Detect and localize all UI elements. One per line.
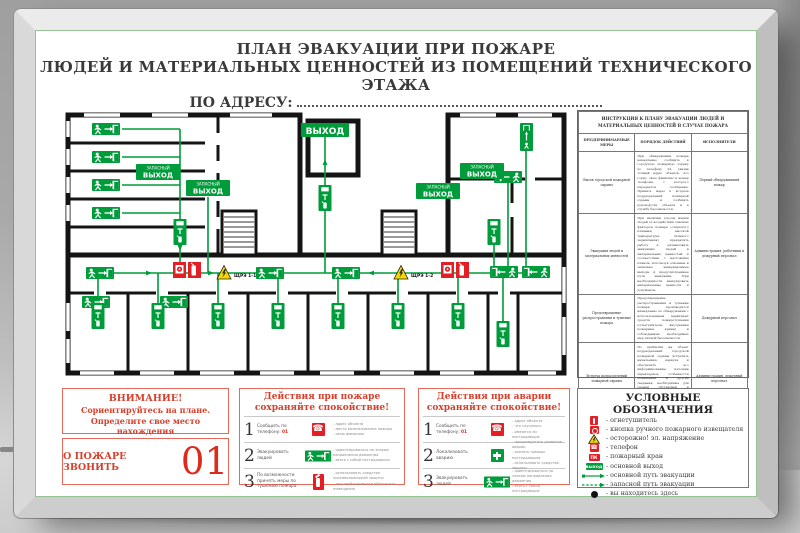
poster-title: ПЛАН ЭВАКУАЦИИ ПРИ ПОЖАРЕ ЛЮДЕЙ И МАТЕРИ… (36, 40, 756, 113)
step-label: Сообщить по телефону: 01 (436, 424, 482, 436)
fire-call-label: О ПОЖАРЕ ЗВОНИТЬ (63, 451, 174, 473)
step-bullets: - предотвратить развитие аварии - оказат… (512, 440, 565, 470)
fire-actions-header: Действия при пожаре сохраняйте спокойств… (244, 389, 400, 416)
step-number: 3 (244, 472, 257, 492)
step-label-text: Локализовать аварию (436, 450, 468, 461)
step-icon-cell (482, 449, 512, 462)
photo-backdrop: ПЛАН ЭВАКУАЦИИ ПРИ ПОЖАРЕ ЛЮДЕЙ И МАТЕРИ… (0, 0, 800, 533)
step-phone-number: 01 (461, 430, 467, 435)
phone-icon: ☎ (491, 423, 504, 436)
fire-actions-subtitle: сохраняйте спокойствие! (255, 403, 389, 413)
title-line-2: ЛЮДЕЙ И МАТЕРИАЛЬНЫХ ЦЕННОСТЕЙ ИЗ ПОМЕЩЕ… (36, 58, 756, 94)
fire-hydrant-icon: ПК (589, 454, 600, 461)
col-header-executors: ИСПОЛНИТЕЛИ (691, 134, 747, 152)
attention-line: Сориентируйтесь на плане. (63, 405, 228, 416)
bullet: - при необходимости обесточить помещение (333, 482, 400, 492)
step-phone-number: 01 (282, 430, 288, 435)
table-row: Вызов городской пожарной охраны При обна… (579, 152, 748, 214)
step-icon-cell (482, 476, 512, 488)
svg-text:ВЫХОД: ВЫХОД (143, 172, 173, 180)
step-number: 1 (244, 420, 257, 440)
bullet: - взять с собой пострадавших (333, 458, 400, 463)
legend-label: - огнетушитель (606, 417, 657, 425)
table-row: Эвакуация людей и материальных ценностей… (579, 214, 748, 294)
main-exit-label: ВЫХОД (301, 123, 349, 137)
legend-label: - осторожно! эл. напряжение (606, 435, 704, 443)
accident-actions-title: Действия при аварии (437, 392, 551, 402)
attention-line: Определите свое место нахождения (63, 416, 228, 437)
fire-call-box: О ПОЖАРЕ ЗВОНИТЬ 01 (62, 438, 229, 485)
accident-actions-header: Действия при аварии сохраняйте спокойств… (423, 389, 565, 416)
exit-sign-icon (305, 450, 331, 462)
executor-cell: Первый обнаруживший пожар (691, 152, 747, 214)
legend-box: УСЛОВНЫЕ ОБОЗНАЧЕНИЯ - огнетушитель - кн… (577, 388, 749, 488)
attention-title: ВНИМАНИЕ! (63, 393, 228, 405)
svg-text:ЩРЭ 1-2: ЩРЭ 1-2 (411, 273, 433, 279)
svg-text:ВЫХОД: ВЫХОД (306, 127, 345, 137)
legend-item: - осторожно! эл. напряжение (582, 434, 744, 443)
bullet: - использовать средства противопожарной … (333, 471, 400, 481)
svg-text:ЩРЭ 1-1: ЩРЭ 1-1 (234, 273, 256, 279)
main-route-icon (582, 472, 606, 480)
measure-cell: Эвакуация людей и материальных ценностей (579, 214, 635, 294)
fire-actions-box: Действия при пожаре сохраняйте спокойств… (239, 388, 405, 485)
emergency-exit-label: ЗАПАСНЫЙ ВЫХОД (136, 164, 180, 180)
step-icon-cell (303, 450, 333, 462)
step-label: Эвакуировать людей (257, 450, 303, 462)
step-icon-cell: ☎ (303, 423, 333, 436)
emergency-exit-label: ЗАПАСНЫЙ ВЫХОД (416, 183, 460, 199)
bullet: - свою фамилию (333, 432, 400, 437)
actions-cell: Предотвращение распространения и тушение… (635, 294, 691, 343)
action-step: 2 Локализовать аварию - предотвратить ра… (423, 442, 565, 468)
svg-text:ВЫХОД: ВЫХОД (467, 171, 497, 179)
legend-item: ПК - пожарный кран (582, 453, 744, 462)
executor-cell: Администрация, работники и дежурный перс… (691, 214, 747, 294)
step-bullets: - адрес объекта - место возникновения по… (333, 422, 400, 437)
alarm-button-icon (590, 426, 599, 434)
step-bullets: - ориентироваться по знакам направления … (333, 448, 400, 463)
emergency-exit-label: ЗАПАСНЫЙ ВЫХОД (186, 180, 230, 196)
legend-item: - запасной путь эвакуации (582, 480, 744, 489)
step-bullets: - адрес объекта - что случилось - имеютс… (512, 419, 565, 439)
step-label-text: Эвакуировать людей (436, 476, 468, 487)
measure-cell: Вызов городской пожарной охраны (579, 152, 635, 214)
electric-warning-icon (588, 434, 600, 444)
svg-text:ВЫХОД: ВЫХОД (423, 191, 453, 199)
step-icon-cell: ☎ (482, 423, 512, 436)
fire-actions-title: Действия при пожаре (264, 392, 380, 402)
svg-text:ВЫХОД: ВЫХОД (193, 188, 223, 196)
action-step: 1 Сообщить по телефону: 01 ☎ - адрес объ… (423, 416, 565, 442)
bullet: - взять с собой пострадавших (512, 484, 565, 494)
step-number: 3 (423, 472, 436, 492)
step-label-text: Эвакуировать людей (257, 450, 289, 461)
executor-cell: Дежурный персонал (691, 294, 747, 343)
attention-box: ВНИМАНИЕ! Сориентируйтесь на плане. Опре… (62, 388, 229, 434)
step-number: 2 (423, 446, 436, 466)
emergency-exit-label: ЗАПАСНЫЙ ВЫХОД (460, 163, 504, 179)
step-bullets: - ориентироваться по знакам направления … (512, 469, 565, 494)
bullet: - предотвратить развитие аварии (512, 440, 565, 450)
actions-cell: При обнаружении пожара немедленно сообщи… (635, 152, 691, 214)
stairs (222, 211, 416, 255)
bullet: - оказать помощь пострадавшим (512, 450, 565, 460)
svg-text:ЗАПАСНЫЙ: ЗАПАСНЫЙ (196, 182, 219, 187)
action-step: 1 Сообщить по телефону: 01 ☎ - адрес объ… (244, 416, 400, 442)
title-line-1: ПЛАН ЭВАКУАЦИИ ПРИ ПОЖАРЕ (36, 40, 756, 58)
svg-text:ЗАПАСНЫЙ: ЗАПАСНЫЙ (426, 185, 449, 190)
legend-label: - основной путь эвакуации (606, 472, 695, 480)
accident-actions-box: Действия при аварии сохраняйте спокойств… (418, 388, 570, 485)
legend-item: - огнетушитель (582, 416, 744, 425)
main-exit-icon: ВЫХОД (586, 463, 603, 470)
svg-text:ЗАПАСНЫЙ: ЗАПАСНЫЙ (146, 166, 169, 171)
exit-signs (82, 123, 550, 308)
legend-item: - основной путь эвакуации (582, 471, 744, 480)
fire-call-number: 01 (181, 443, 228, 480)
legend-item: ВЫХОД - основной выход (582, 462, 744, 471)
bullet: - ориентироваться по знакам направления … (512, 469, 565, 484)
you-are-here-icon (591, 491, 598, 498)
step-label-text: По возможности принять меры по тушению п… (257, 473, 297, 490)
extinguisher-icon (590, 416, 598, 425)
address-dotted-line (297, 94, 602, 107)
measure-cell: Предотвращение распространения и тушение… (579, 294, 635, 343)
action-step: 3 По возможности принять меры по тушению… (244, 468, 400, 494)
legend-label: - вы находитесь здесь (606, 490, 678, 498)
exit-sign-icon (484, 476, 510, 488)
instruction-table: ИНСТРУКЦИЯ К ПЛАНУ ЭВАКУАЦИИ ЛЮДЕЙ И МАТ… (577, 110, 749, 378)
svg-text:ЗАПАСНЫЙ: ЗАПАСНЫЙ (470, 165, 493, 170)
bullet: - имеются ли пострадавшие (512, 430, 565, 440)
action-step: 2 Эвакуировать людей - ориентироваться п… (244, 442, 400, 468)
aluminum-frame: ПЛАН ЭВАКУАЦИИ ПРИ ПОЖАРЕ ЛЮДЕЙ И МАТЕРИ… (14, 9, 778, 518)
legend-label: - запасной путь эвакуации (606, 481, 694, 489)
legend-item: ☎ - телефон (582, 444, 744, 453)
step-bullets: - использовать средства противопожарной … (333, 471, 400, 491)
action-step: 3 Эвакуировать людей - ориентироваться п… (423, 468, 565, 494)
step-label: По возможности принять меры по тушению п… (257, 473, 303, 490)
accident-actions-subtitle: сохраняйте спокойствие! (427, 403, 561, 413)
instruction-table-title: ИНСТРУКЦИЯ К ПЛАНУ ЭВАКУАЦИИ ЛЮДЕЙ И МАТ… (579, 112, 748, 134)
extinguisher-icon (313, 474, 324, 490)
col-header-actions: ПОРЯДОК ДЕЙСТВИЙ (635, 134, 691, 152)
actions-cell: При наличии угрозы жизни людей от воздей… (635, 214, 691, 294)
table-row: Предотвращение распространения и тушение… (579, 294, 748, 343)
legend-item: - вы находитесь здесь (582, 490, 744, 499)
legend-title: УСЛОВНЫЕ ОБОЗНАЧЕНИЯ (582, 392, 744, 416)
legend-item: - кнопка ручного пожарного извещателя (582, 425, 744, 434)
reserve-route-icon (582, 481, 606, 489)
phone-icon: ☎ (312, 423, 325, 436)
phone-icon: ☎ (590, 444, 599, 452)
step-label: Эвакуировать людей (436, 476, 482, 488)
legend-label: - кнопка ручного пожарного извещателя (606, 426, 743, 434)
first-aid-icon (491, 449, 504, 462)
evacuation-plan-poster: ПЛАН ЭВАКУАЦИИ ПРИ ПОЖАРЕ ЛЮДЕЙ И МАТЕРИ… (35, 30, 757, 497)
step-number: 1 (423, 420, 436, 440)
step-icon-cell (303, 474, 333, 490)
col-header-measures: ПРЕДПРИНИМАЕМЫЕ МЕРЫ (579, 134, 635, 152)
floor-plan-drawing: ВЫХОД ЗАПАСНЫЙ ВЫХОД ЗАПАСНЫЙ ВЫХОД (60, 107, 572, 379)
legend-label: - основной выход (606, 463, 663, 471)
step-label: Локализовать аварию (436, 450, 482, 462)
step-number: 2 (244, 446, 257, 466)
floor-plan: ВЫХОД ЗАПАСНЫЙ ВЫХОД ЗАПАСНЫЙ ВЫХОД (60, 107, 572, 379)
legend-label: - телефон (606, 444, 638, 452)
legend-label: - пожарный кран (606, 453, 663, 461)
bullet: - ориентироваться по знакам направления … (333, 448, 400, 458)
step-label: Сообщить по телефону: 01 (257, 424, 303, 436)
